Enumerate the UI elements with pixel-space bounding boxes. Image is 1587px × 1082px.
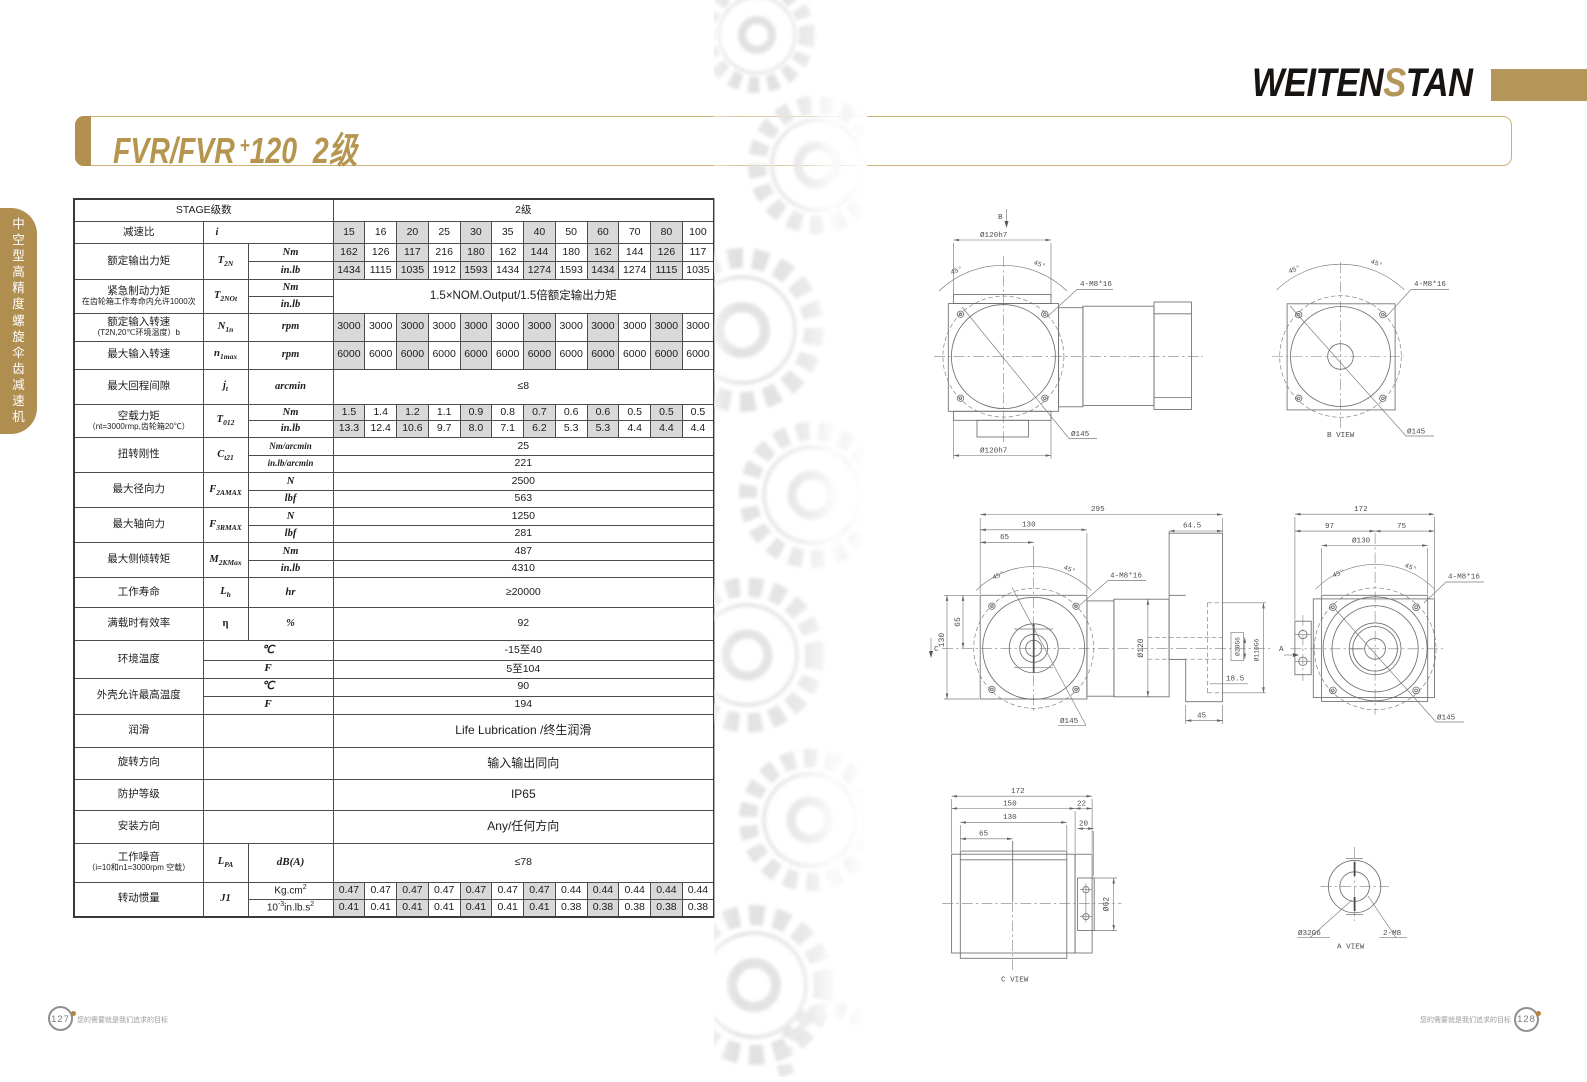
svg-text:Ø120h7: Ø120h7 (980, 447, 1007, 456)
svg-text:130: 130 (1022, 522, 1036, 530)
svg-text:4-M8*16: 4-M8*16 (1448, 574, 1480, 582)
svg-text:150: 150 (1003, 801, 1017, 809)
svg-text:Ø62: Ø62 (1103, 897, 1112, 912)
svg-text:18.5: 18.5 (1226, 676, 1245, 684)
svg-text:22: 22 (1077, 801, 1087, 809)
svg-text:130: 130 (938, 633, 947, 648)
svg-text:45°: 45° (1062, 563, 1077, 576)
svg-text:Ø145: Ø145 (1071, 430, 1090, 439)
svg-text:4-M8*16: 4-M8*16 (1080, 281, 1112, 289)
svg-text:45: 45 (1197, 713, 1207, 721)
svg-text:65: 65 (979, 831, 989, 839)
svg-text:65: 65 (1000, 534, 1010, 542)
svg-text:65: 65 (954, 617, 963, 627)
svg-text:172: 172 (1011, 788, 1025, 796)
svg-text:4-M8*16: 4-M8*16 (1110, 573, 1142, 581)
svg-text:45°: 45° (949, 265, 964, 278)
svg-text:C VIEW: C VIEW (1001, 977, 1029, 985)
svg-text:75: 75 (1397, 523, 1407, 531)
svg-text:97: 97 (1325, 523, 1334, 531)
svg-text:20: 20 (1079, 821, 1089, 829)
svg-text:Ø145: Ø145 (1407, 428, 1426, 437)
svg-text:B: B (998, 214, 1003, 222)
svg-text:C: C (934, 646, 939, 654)
svg-text:172: 172 (1354, 506, 1368, 514)
svg-text:Ø120h7: Ø120h7 (980, 231, 1007, 240)
svg-text:Ø145: Ø145 (1437, 714, 1456, 723)
svg-text:45°: 45° (991, 570, 1006, 583)
svg-text:295: 295 (1091, 506, 1105, 514)
svg-text:45°: 45° (1331, 568, 1346, 581)
svg-text:4-M8*16: 4-M8*16 (1414, 281, 1446, 289)
svg-text:Ø110G6: Ø110G6 (1253, 638, 1261, 661)
svg-text:Ø130: Ø130 (1352, 537, 1371, 546)
svg-text:Ø145: Ø145 (1060, 717, 1079, 726)
svg-text:130: 130 (1003, 814, 1017, 822)
svg-text:Ø120: Ø120 (1137, 638, 1146, 657)
svg-text:64.5: 64.5 (1183, 523, 1202, 531)
svg-text:45°: 45° (1287, 264, 1302, 277)
svg-text:2-M8: 2-M8 (1383, 930, 1402, 938)
svg-text:45°: 45° (1369, 257, 1384, 270)
svg-text:A: A (1279, 646, 1284, 654)
svg-text:45°: 45° (1403, 561, 1418, 574)
svg-text:B VIEW: B VIEW (1327, 432, 1355, 440)
svg-text:A VIEW: A VIEW (1337, 944, 1365, 952)
svg-text:Ø28G6: Ø28G6 (1234, 637, 1242, 656)
svg-text:45°: 45° (1032, 258, 1047, 271)
svg-text:Ø32G6: Ø32G6 (1298, 929, 1321, 938)
